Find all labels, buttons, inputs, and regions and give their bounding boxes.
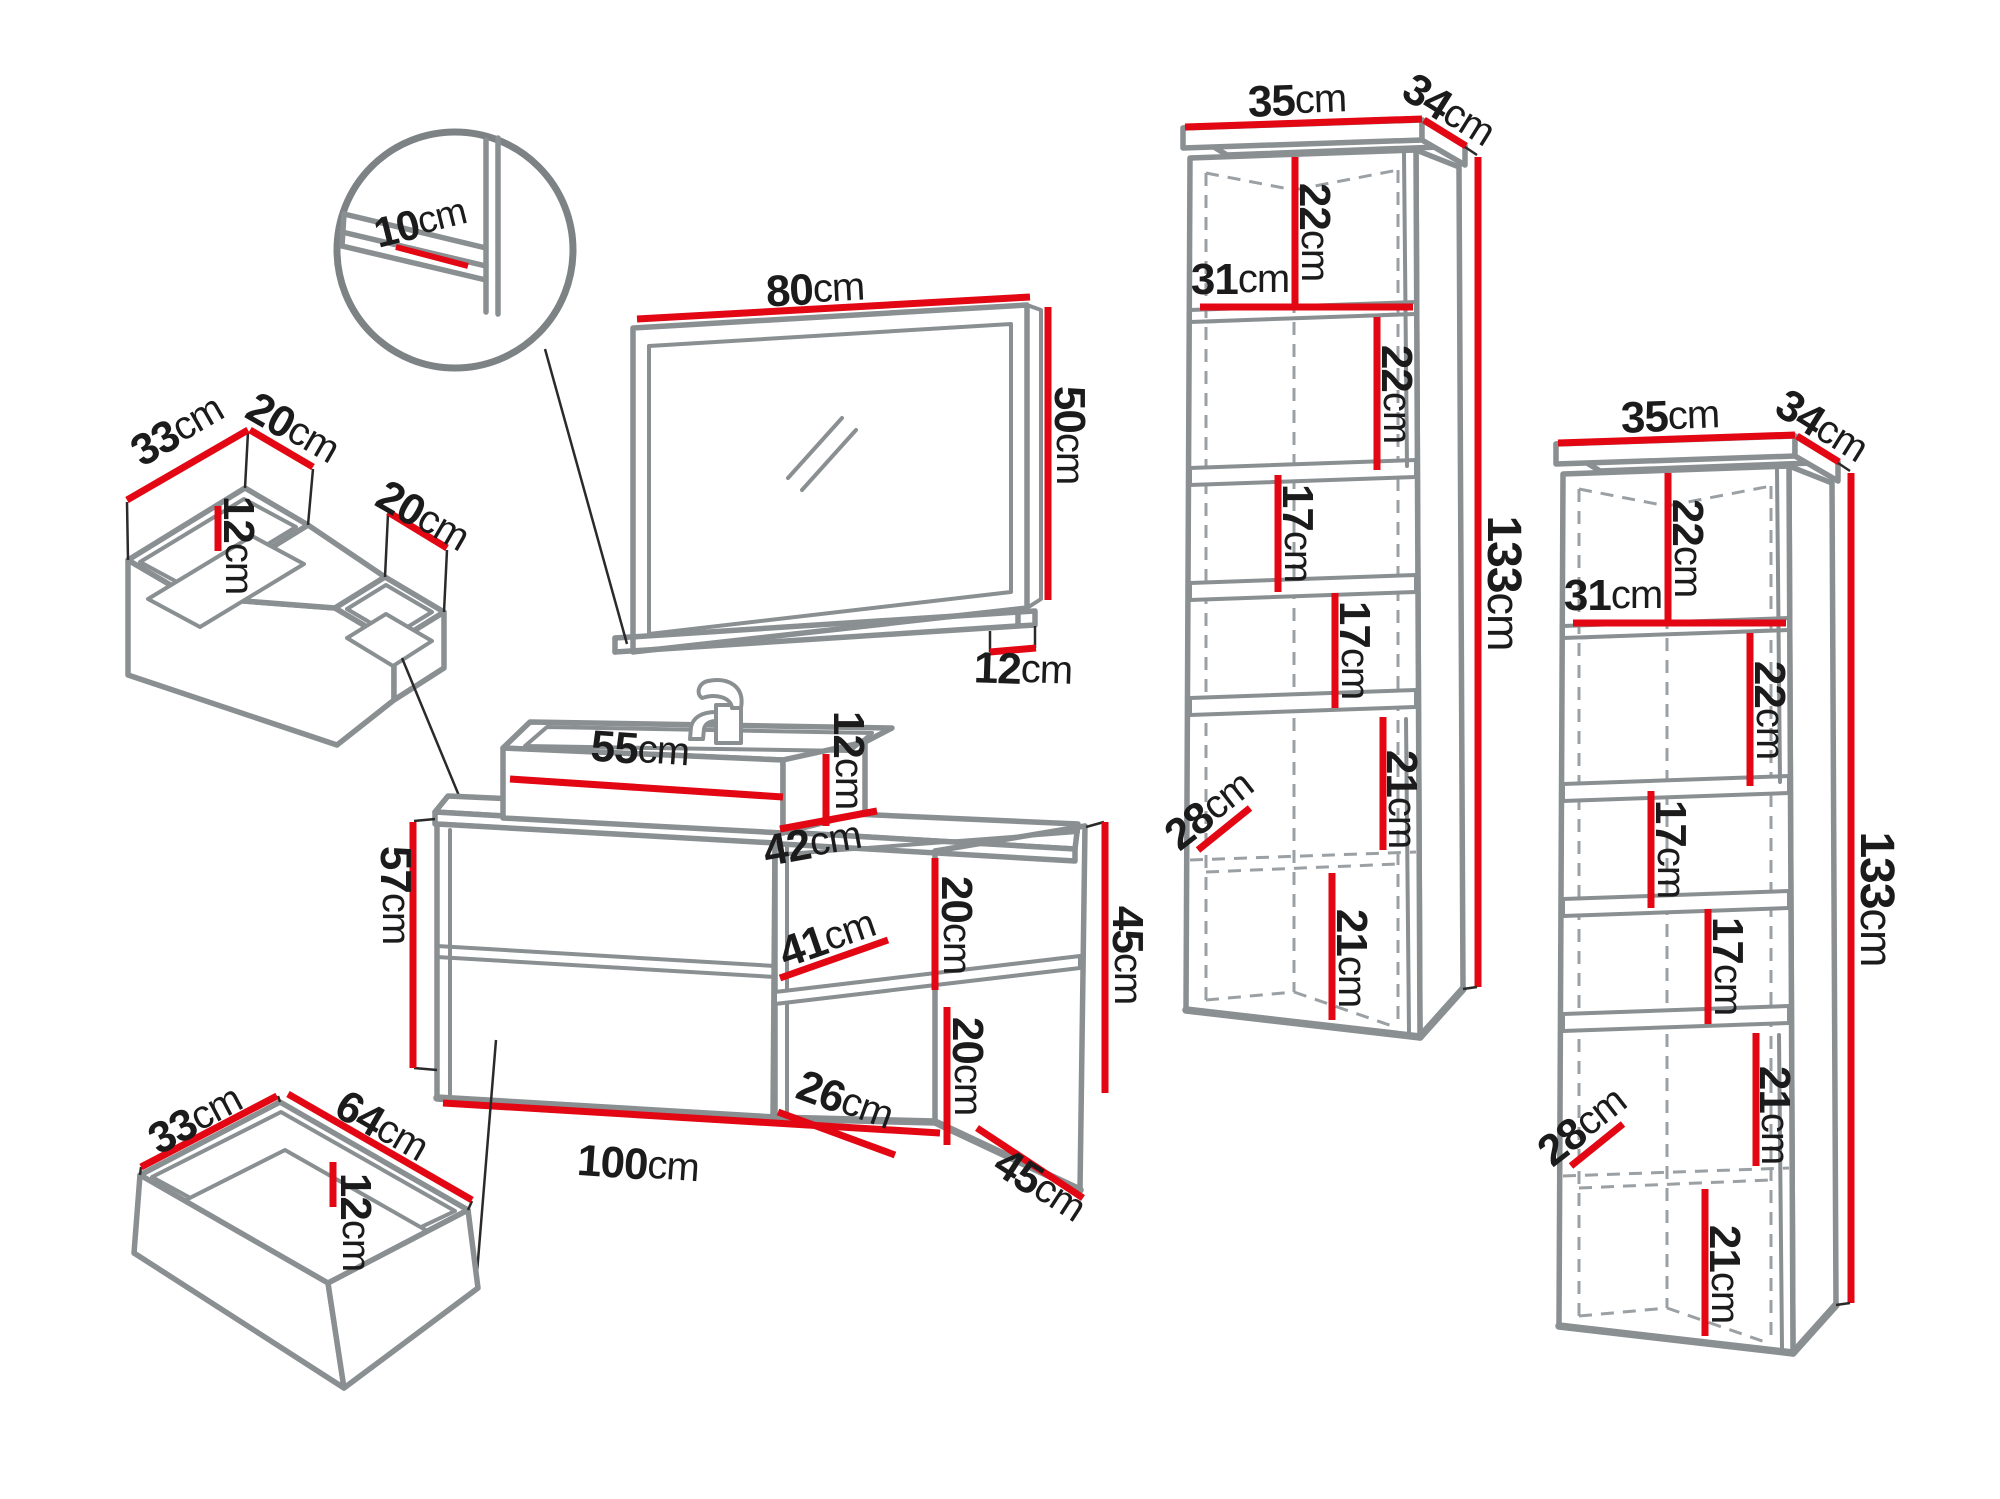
- furniture-dimension-diagram: 80cm 50cm 12cm 10cm: [0, 0, 2000, 1499]
- mirror-glass: [649, 324, 1011, 634]
- dim-label-cab2-section-a: 22cm: [1664, 499, 1713, 597]
- dim-label-cab2-section-d: 17cm: [1704, 917, 1753, 1015]
- dim-label-cab2-section-f: 21cm: [1701, 1225, 1750, 1323]
- callout-leader-line: [545, 349, 627, 644]
- dim-label-cab1-section-e: 21cm: [1378, 750, 1427, 848]
- dim-label-cab1-section-f: 21cm: [1328, 909, 1377, 1007]
- dim-label-cab2-section-c: 17cm: [1647, 800, 1696, 898]
- dim-label-cab2-top-width: 35cm: [1620, 390, 1720, 442]
- dim-label-cab1-shelf-width: 31cm: [1191, 255, 1289, 304]
- faucet-icon: [690, 680, 742, 743]
- dim-label-cab2-section-b: 22cm: [1746, 661, 1795, 759]
- dim-label-mirror-shelf-depth: 12cm: [973, 643, 1073, 695]
- vanity-unit: 55cm 12cm 42cm 57cm 100cm 45cm 45cm 20cm…: [372, 680, 1153, 1285]
- dim-label-cab2-shelf-width: 31cm: [1564, 571, 1662, 620]
- dim-label-cab1-section-a: 22cm: [1291, 183, 1340, 281]
- dim-label-cab2-section-e: 21cm: [1751, 1066, 1800, 1164]
- tall-cabinet-right: 35cm 34cm 22cm 31cm 22cm 17cm 17cm 21cm …: [1528, 379, 1903, 1353]
- diagram-canvas: 80cm 50cm 12cm 10cm: [0, 0, 2000, 1499]
- shelf-detail-callout: 10cm: [337, 132, 627, 644]
- dim-label-mirror-height: 50cm: [1046, 386, 1095, 484]
- dim-label-basin-height: 12cm: [825, 711, 874, 809]
- side-panel-back-edge: [1080, 826, 1085, 1190]
- dim-label-cab1-section-d: 17cm: [1331, 601, 1380, 699]
- drawer: 33cm 64cm 12cm: [134, 1074, 478, 1388]
- dim-label-open-bottom-height: 20cm: [944, 1017, 993, 1115]
- dim-label-cab1-section-c: 17cm: [1274, 484, 1323, 582]
- dim-label-basin-width: 55cm: [589, 721, 690, 777]
- dim-label-open-top-height: 20cm: [933, 876, 982, 974]
- dim-label-cab1-section-b: 22cm: [1373, 345, 1422, 443]
- dim-label-drawer-height: 12cm: [332, 1173, 381, 1271]
- dim-label-open-height: 45cm: [1104, 906, 1153, 1004]
- magnifier-circle-icon: [337, 132, 573, 368]
- tall-cabinet-left: 35cm 34cm 22cm 31cm 22cm 17cm 17cm 21cm …: [1155, 63, 1530, 1037]
- mirror: 80cm 50cm 12cm: [615, 262, 1095, 695]
- dim-label-cab2-height: 133cm: [1851, 831, 1904, 966]
- dim-label-organizer-right-width: 20cm: [368, 470, 478, 562]
- dim-label-cab1-top-width: 35cm: [1247, 74, 1347, 126]
- dim-label-cab1-height: 133cm: [1478, 515, 1531, 650]
- dim-label-organizer-depth: 33cm: [122, 384, 232, 476]
- dim-label-organizer-left-width: 20cm: [238, 382, 348, 474]
- vanity-drawer-front: [437, 824, 775, 1118]
- dim-label-vanity-height: 57cm: [372, 846, 421, 944]
- mirror-shelf-end: [1018, 611, 1035, 626]
- dim-label-mirror-width: 80cm: [765, 262, 866, 316]
- dim-label-organizer-height: 12cm: [215, 496, 264, 594]
- dim-label-vanity-width: 100cm: [576, 1135, 701, 1192]
